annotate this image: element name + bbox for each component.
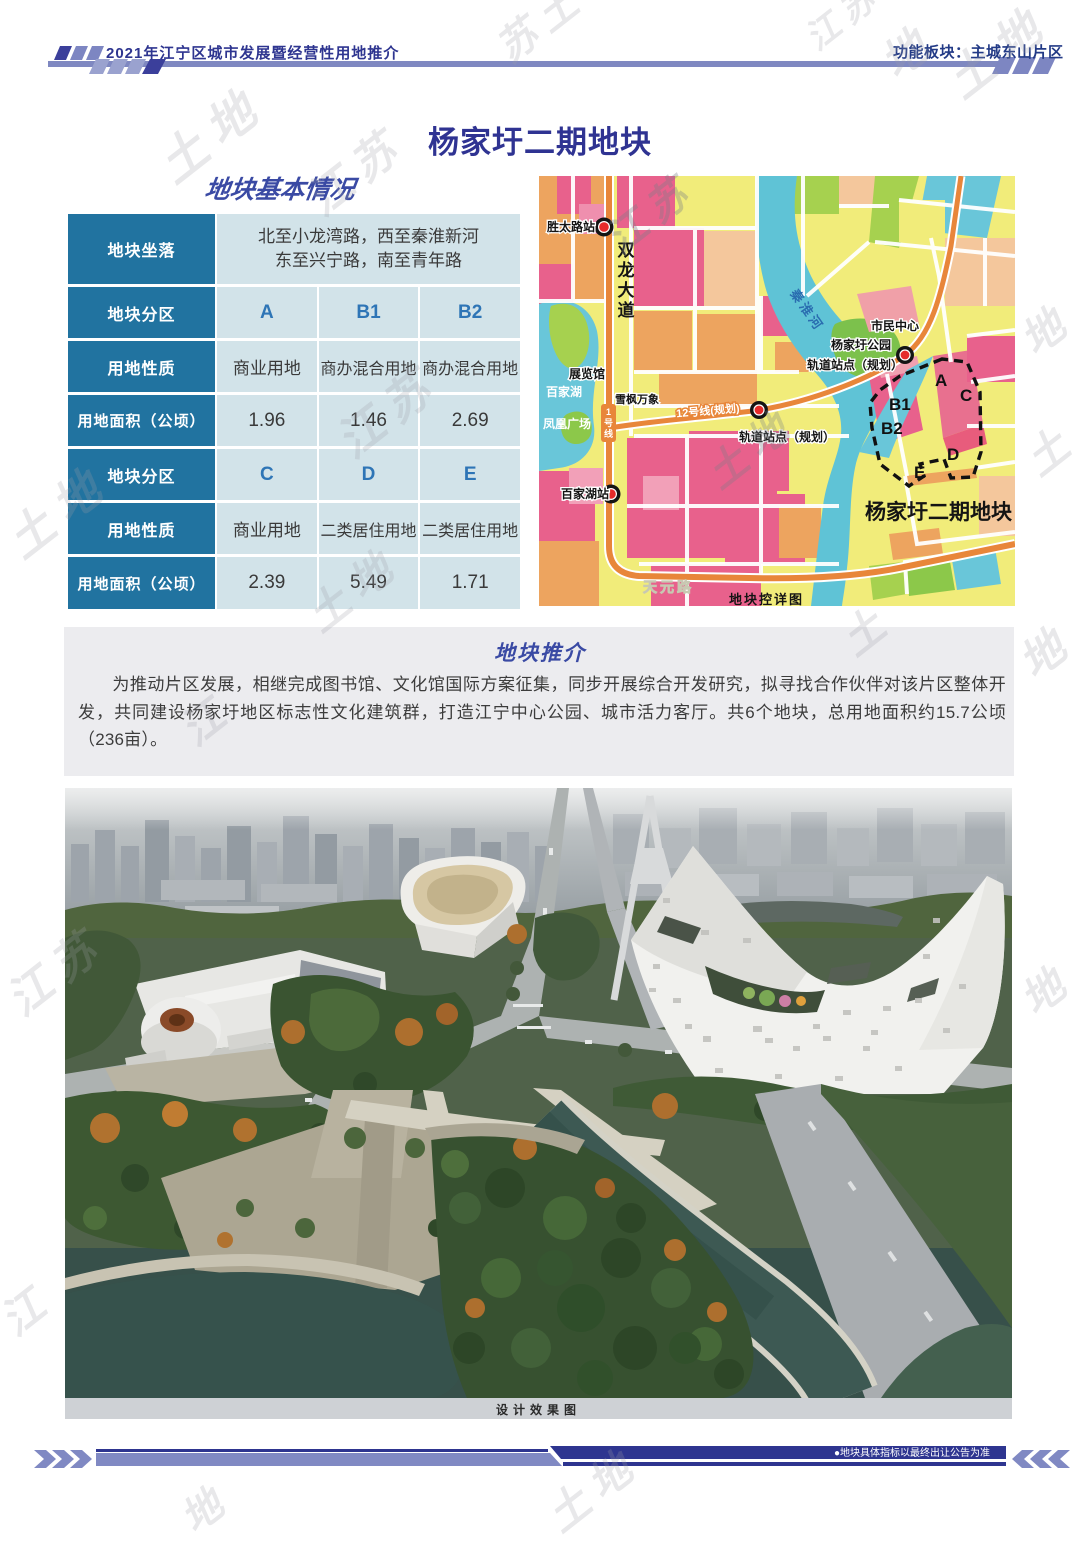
svg-text:雪枫万象: 雪枫万象 (615, 392, 659, 406)
svg-text:胜太路站: 胜太路站 (547, 219, 595, 234)
svg-text:线: 线 (604, 428, 613, 439)
svg-text:龙: 龙 (617, 260, 635, 280)
svg-text:B1: B1 (889, 395, 911, 414)
svg-text:地块控详图: 地块控详图 (729, 592, 804, 606)
svg-text:凤凰广场: 凤凰广场 (543, 416, 591, 431)
svg-text:杨家圩二期地块: 杨家圩二期地块 (865, 500, 1013, 524)
svg-text:双: 双 (618, 241, 635, 260)
svg-text:A: A (935, 371, 947, 390)
svg-text:●地块具体指标以最终出让公告为准: ●地块具体指标以最终出让公告为准 (834, 1446, 990, 1459)
svg-text:号: 号 (604, 418, 613, 428)
svg-text:D: D (947, 445, 959, 464)
svg-text:C: C (960, 386, 972, 405)
svg-text:百家湖站: 百家湖站 (561, 486, 609, 501)
svg-text:B2: B2 (881, 419, 903, 438)
svg-text:轨道站点（规划）: 轨道站点（规划） (807, 357, 903, 372)
svg-text:大: 大 (618, 280, 635, 300)
svg-text:道: 道 (618, 300, 635, 320)
svg-text:E: E (914, 463, 925, 482)
svg-text:轨道站点（规划）: 轨道站点（规划） (739, 429, 835, 444)
svg-text:1: 1 (606, 407, 611, 417)
svg-text:市民中心: 市民中心 (871, 318, 919, 333)
svg-text:杨家圩公园: 杨家圩公园 (831, 337, 891, 352)
svg-text:百家湖: 百家湖 (546, 384, 582, 399)
svg-text:天元路: 天元路 (643, 579, 694, 595)
svg-text:展览馆: 展览馆 (569, 366, 605, 381)
